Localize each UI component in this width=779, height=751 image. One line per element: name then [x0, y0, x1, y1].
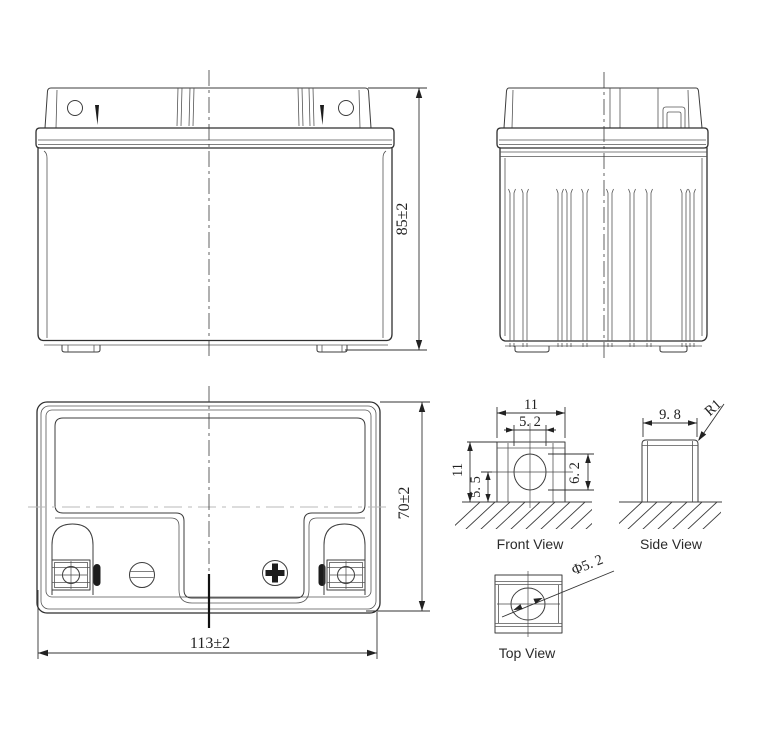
diameter-leader-line — [502, 571, 614, 617]
label-side-view: Side View — [640, 536, 703, 552]
terminal-side-outline — [642, 440, 698, 502]
technical-drawing-battery: 85±2 — [0, 0, 779, 751]
terminal-top-detail: Φ5. 2 Top View — [495, 552, 614, 661]
battery-front-view — [36, 70, 394, 358]
terminal-front-detail: 11 5. 2 11 5. 5 6. 2 Front View — [450, 397, 615, 552]
battery-side-view — [497, 72, 708, 360]
terminal-post-left — [95, 105, 99, 125]
dim-overall-width: 113±2 — [38, 590, 377, 659]
front-cover-band — [36, 128, 394, 148]
front-lid — [45, 88, 371, 128]
dim-text-terminal-hole-diameter: Φ5. 2 — [570, 552, 606, 579]
side-foot-right — [660, 346, 687, 352]
terminal-housing-left — [52, 524, 93, 595]
dim-text-terminal-width: 11 — [524, 397, 538, 413]
terminal-post-right — [320, 105, 324, 125]
dim-text-overall-height: 85±2 — [394, 203, 411, 236]
battery-top-view — [28, 386, 390, 628]
dim-text-overall-width: 113±2 — [190, 635, 230, 652]
negative-terminal-screw — [130, 563, 155, 588]
side-lid-terminal-bump — [663, 107, 685, 128]
positive-terminal-screw — [263, 561, 288, 586]
side-body — [500, 148, 707, 352]
terminal-housing-right — [324, 524, 365, 595]
vent-cap-left — [68, 101, 83, 116]
dim-overall-height: 85±2 — [345, 88, 427, 350]
side-foot-left — [515, 346, 549, 352]
dim-text-terminal-depth: 9. 8 — [659, 407, 681, 423]
dim-text-terminal-hole-width: 5. 2 — [519, 414, 541, 430]
drawing-svg: 85±2 — [0, 0, 779, 751]
ground-hatching-side — [612, 502, 732, 530]
label-top-view: Top View — [499, 645, 556, 661]
side-lid — [504, 88, 702, 128]
terminal-clamp-left — [94, 564, 101, 586]
label-front-view: Front View — [497, 536, 565, 552]
dim-text-overall-depth: 70±2 — [396, 487, 413, 520]
vent-cap-right — [339, 101, 354, 116]
dim-text-terminal-hole-height: 6. 2 — [567, 462, 583, 484]
front-foot-right — [317, 345, 347, 352]
front-body — [38, 148, 392, 352]
ground-hatching-front — [450, 502, 615, 530]
dim-text-terminal-corner-radius: R1 — [702, 396, 725, 419]
terminal-side-detail: 9. 8 R1 Side View — [612, 396, 732, 552]
dim-text-terminal-hole-center-height: 5. 5 — [468, 476, 484, 498]
side-ribs — [509, 189, 696, 347]
dim-text-terminal-height: 11 — [450, 463, 466, 477]
front-foot-left — [62, 345, 100, 352]
side-cover-band — [497, 128, 708, 148]
